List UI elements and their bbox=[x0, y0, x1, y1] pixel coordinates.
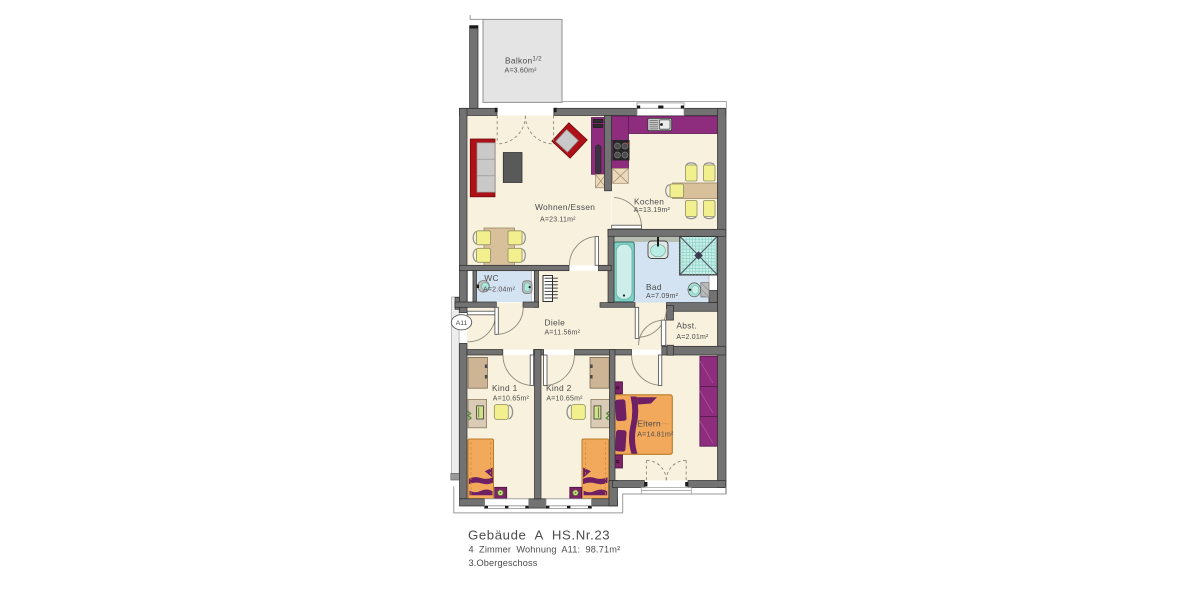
svg-text:A=10.65m²: A=10.65m² bbox=[493, 395, 530, 402]
svg-text:A=14.81m²: A=14.81m² bbox=[637, 432, 674, 439]
svg-text:A=23.11m²: A=23.11m² bbox=[540, 217, 576, 224]
svg-text:Diele: Diele bbox=[545, 317, 566, 327]
svg-text:A=10.65m²: A=10.65m² bbox=[546, 395, 583, 402]
svg-text:A=7.09m²: A=7.09m² bbox=[646, 293, 679, 300]
svg-text:4 Zimmer Wohnung A11: 98.71m²: 4 Zimmer Wohnung A11: 98.71m² bbox=[469, 545, 621, 555]
svg-text:A=11.56m²: A=11.56m² bbox=[545, 329, 581, 336]
svg-text:Bad: Bad bbox=[646, 282, 662, 292]
svg-text:3.Obergeschoss: 3.Obergeschoss bbox=[469, 558, 538, 568]
svg-text:A=2.01m²: A=2.01m² bbox=[676, 334, 709, 341]
svg-text:A=13.19m²: A=13.19m² bbox=[634, 207, 671, 214]
svg-text:Wohnen/Essen: Wohnen/Essen bbox=[535, 202, 595, 212]
svg-text:Gebäude A HS.Nr.23: Gebäude A HS.Nr.23 bbox=[468, 528, 610, 543]
svg-text:WC: WC bbox=[484, 273, 499, 283]
svg-text:A=2.04m²: A=2.04m² bbox=[483, 287, 516, 294]
svg-text:Kochen: Kochen bbox=[634, 197, 664, 207]
svg-text:A11: A11 bbox=[456, 320, 468, 327]
svg-text:Kind 1: Kind 1 bbox=[492, 383, 518, 393]
svg-text:A=3.60m²: A=3.60m² bbox=[505, 68, 538, 75]
svg-text:Abst.: Abst. bbox=[676, 321, 697, 331]
svg-text:Kind 2: Kind 2 bbox=[546, 383, 572, 393]
svg-text:Eltern: Eltern bbox=[637, 419, 661, 429]
